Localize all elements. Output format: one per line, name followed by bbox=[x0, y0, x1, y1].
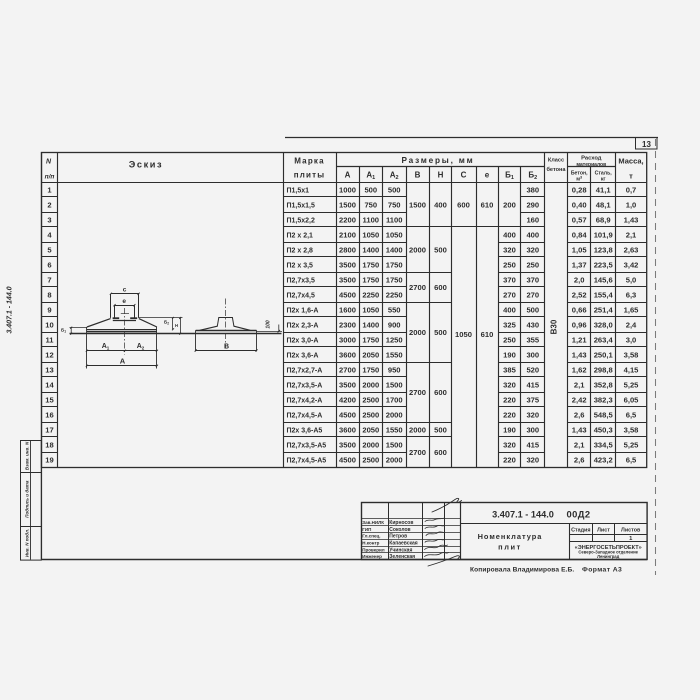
svg-text:Проверил: Проверил bbox=[362, 547, 384, 552]
svg-text:900: 900 bbox=[388, 320, 401, 329]
svg-text:П2,7х3,5-А: П2,7х3,5-А bbox=[287, 382, 323, 389]
svg-text:1750: 1750 bbox=[362, 275, 379, 284]
svg-text:320: 320 bbox=[503, 245, 516, 254]
svg-text:300: 300 bbox=[526, 425, 539, 434]
svg-text:2000: 2000 bbox=[409, 328, 426, 337]
svg-text:385: 385 bbox=[503, 365, 516, 374]
svg-text:48,1: 48,1 bbox=[596, 200, 612, 209]
svg-text:190: 190 bbox=[503, 425, 516, 434]
svg-text:610: 610 bbox=[481, 200, 494, 209]
svg-text:П2х 3,6-А: П2х 3,6-А bbox=[287, 352, 319, 359]
svg-text:320: 320 bbox=[526, 410, 539, 419]
svg-text:Марка: Марка bbox=[294, 157, 325, 166]
svg-text:600: 600 bbox=[434, 388, 447, 397]
svg-text:9: 9 bbox=[47, 305, 51, 314]
svg-text:Размеры, мм: Размеры, мм bbox=[402, 156, 475, 165]
svg-text:250: 250 bbox=[526, 260, 539, 269]
svg-text:плиты: плиты bbox=[294, 171, 326, 180]
svg-text:550: 550 bbox=[388, 305, 401, 314]
svg-text:3,42: 3,42 bbox=[624, 260, 639, 269]
svg-text:160: 160 bbox=[526, 215, 539, 224]
svg-text:380: 380 bbox=[526, 185, 539, 194]
svg-text:600: 600 bbox=[434, 283, 447, 292]
svg-text:2,6: 2,6 bbox=[574, 455, 585, 464]
svg-text:П2,7х3,5-А5: П2,7х3,5-А5 bbox=[287, 442, 327, 449]
svg-text:320: 320 bbox=[503, 440, 516, 449]
svg-text:А: А bbox=[120, 356, 126, 365]
svg-text:1050: 1050 bbox=[386, 230, 403, 239]
svg-text:А: А bbox=[345, 171, 351, 180]
svg-text:1400: 1400 bbox=[362, 245, 379, 254]
svg-text:2000: 2000 bbox=[386, 455, 403, 464]
svg-text:220: 220 bbox=[503, 410, 516, 419]
svg-text:3500: 3500 bbox=[339, 260, 356, 269]
svg-text:415: 415 bbox=[526, 380, 539, 389]
svg-text:3: 3 bbox=[47, 215, 51, 224]
svg-text:375: 375 bbox=[526, 395, 539, 404]
svg-text:Лист: Лист bbox=[597, 528, 610, 534]
svg-text:2,1: 2,1 bbox=[574, 380, 585, 389]
svg-text:1500: 1500 bbox=[386, 380, 403, 389]
svg-text:415: 415 bbox=[526, 440, 539, 449]
svg-text:П2,7х3,5: П2,7х3,5 bbox=[287, 277, 315, 284]
svg-text:1550: 1550 bbox=[386, 425, 403, 434]
svg-text:Инженер: Инженер bbox=[362, 554, 382, 559]
svg-text:Номенклатура: Номенклатура bbox=[478, 532, 543, 541]
svg-text:400: 400 bbox=[503, 305, 516, 314]
svg-text:500: 500 bbox=[434, 425, 447, 434]
svg-text:2700: 2700 bbox=[409, 283, 426, 292]
svg-text:5,25: 5,25 bbox=[624, 440, 640, 449]
svg-text:298,8: 298,8 bbox=[594, 365, 613, 374]
svg-text:Кирносов: Кирносов bbox=[389, 520, 413, 526]
svg-text:220: 220 bbox=[503, 395, 516, 404]
svg-text:2000: 2000 bbox=[362, 440, 379, 449]
svg-text:352,8: 352,8 bbox=[594, 380, 613, 389]
svg-text:123,8: 123,8 bbox=[594, 245, 613, 254]
svg-text:0,28: 0,28 bbox=[572, 185, 587, 194]
svg-text:2300: 2300 bbox=[339, 320, 356, 329]
svg-text:3.407.1 - 144.0: 3.407.1 - 144.0 bbox=[492, 510, 554, 520]
svg-text:6: 6 bbox=[47, 260, 51, 269]
svg-text:1400: 1400 bbox=[362, 320, 379, 329]
svg-text:10: 10 bbox=[45, 320, 53, 329]
svg-text:Н.контр: Н.контр bbox=[362, 541, 379, 546]
svg-text:е: е bbox=[122, 298, 126, 305]
svg-text:2000: 2000 bbox=[386, 410, 403, 419]
svg-text:500: 500 bbox=[434, 245, 447, 254]
svg-text:П2х 1,6-А: П2х 1,6-А bbox=[287, 307, 319, 314]
svg-text:плит: плит bbox=[498, 543, 522, 552]
svg-text:423,2: 423,2 bbox=[594, 455, 613, 464]
svg-text:Капаевская: Капаевская bbox=[389, 541, 417, 547]
svg-text:68,9: 68,9 bbox=[596, 215, 611, 224]
svg-text:Масса,: Масса, bbox=[618, 157, 643, 166]
svg-text:0,96: 0,96 bbox=[572, 320, 587, 329]
svg-text:223,5: 223,5 bbox=[594, 260, 614, 269]
svg-text:4500: 4500 bbox=[339, 410, 356, 419]
svg-text:1750: 1750 bbox=[386, 275, 403, 284]
svg-text:1600: 1600 bbox=[339, 305, 356, 314]
svg-text:190: 190 bbox=[503, 350, 516, 359]
svg-text:2700: 2700 bbox=[409, 388, 426, 397]
svg-text:П2х 2,3-А: П2х 2,3-А bbox=[287, 322, 319, 329]
svg-text:Подпись и дата: Подпись и дата bbox=[24, 480, 29, 518]
svg-text:1400: 1400 bbox=[386, 245, 403, 254]
svg-text:2,6: 2,6 bbox=[574, 410, 585, 419]
svg-text:1100: 1100 bbox=[363, 215, 379, 224]
svg-text:П2,7х2,7-А: П2,7х2,7-А bbox=[287, 367, 323, 374]
svg-text:4,15: 4,15 bbox=[624, 365, 640, 374]
svg-text:263,4: 263,4 bbox=[594, 335, 614, 344]
svg-text:2,1: 2,1 bbox=[626, 230, 637, 239]
svg-text:2100: 2100 bbox=[339, 230, 356, 239]
svg-text:0,40: 0,40 bbox=[572, 200, 587, 209]
svg-text:1750: 1750 bbox=[386, 260, 403, 269]
svg-text:450,3: 450,3 bbox=[594, 425, 613, 434]
svg-text:3500: 3500 bbox=[339, 440, 356, 449]
svg-text:2,63: 2,63 bbox=[624, 245, 639, 254]
svg-text:13: 13 bbox=[642, 140, 651, 149]
svg-text:355: 355 bbox=[526, 335, 539, 344]
svg-text:41,1: 41,1 bbox=[596, 185, 612, 194]
svg-text:Гл.спец.: Гл.спец. bbox=[362, 534, 380, 539]
svg-text:6,05: 6,05 bbox=[624, 395, 640, 404]
svg-text:2050: 2050 bbox=[362, 350, 379, 359]
svg-text:101,9: 101,9 bbox=[594, 230, 613, 239]
svg-text:7: 7 bbox=[47, 275, 51, 284]
svg-text:кг: кг bbox=[601, 177, 607, 183]
svg-text:Расход: Расход bbox=[581, 156, 602, 162]
svg-text:11: 11 bbox=[45, 335, 54, 344]
svg-text:2500: 2500 bbox=[362, 395, 379, 404]
svg-text:145,6: 145,6 bbox=[594, 275, 613, 284]
svg-text:1,43: 1,43 bbox=[572, 425, 587, 434]
svg-text:1100: 1100 bbox=[386, 215, 402, 224]
svg-text:548,5: 548,5 bbox=[594, 410, 614, 419]
svg-text:400: 400 bbox=[434, 200, 447, 209]
svg-text:750: 750 bbox=[364, 200, 377, 209]
svg-text:1050: 1050 bbox=[362, 230, 379, 239]
svg-text:3500: 3500 bbox=[339, 380, 356, 389]
svg-text:17: 17 bbox=[45, 425, 53, 434]
svg-text:100: 100 bbox=[266, 320, 272, 329]
svg-text:0,7: 0,7 bbox=[626, 185, 637, 194]
svg-text:2,42: 2,42 bbox=[572, 395, 587, 404]
svg-text:2,0: 2,0 bbox=[574, 275, 585, 284]
svg-text:ГИП: ГИП bbox=[362, 527, 371, 532]
svg-text:П2,7х4,5-А: П2,7х4,5-А bbox=[287, 412, 323, 419]
svg-text:Класс: Класс bbox=[548, 158, 564, 164]
svg-text:3600: 3600 bbox=[339, 425, 356, 434]
svg-text:430: 430 bbox=[526, 320, 539, 329]
svg-text:В: В bbox=[415, 171, 421, 180]
svg-text:П2х 3,0-А: П2х 3,0-А bbox=[287, 337, 319, 344]
svg-text:600: 600 bbox=[434, 448, 447, 457]
svg-text:2,4: 2,4 bbox=[626, 320, 637, 329]
svg-text:13: 13 bbox=[45, 365, 53, 374]
svg-text:2000: 2000 bbox=[409, 425, 426, 434]
svg-text:2500: 2500 bbox=[362, 455, 379, 464]
svg-text:2250: 2250 bbox=[386, 290, 403, 299]
svg-text:1,65: 1,65 bbox=[624, 305, 640, 314]
svg-text:3,0: 3,0 bbox=[626, 335, 637, 344]
svg-text:Листов: Листов bbox=[621, 528, 641, 534]
svg-text:1,43: 1,43 bbox=[572, 350, 587, 359]
svg-text:Взам. инв. N: Взам. инв. N bbox=[24, 441, 29, 470]
svg-text:т: т bbox=[629, 172, 633, 181]
svg-text:950: 950 bbox=[388, 365, 401, 374]
svg-text:3,58: 3,58 bbox=[624, 425, 639, 434]
svg-text:3000: 3000 bbox=[339, 335, 356, 344]
svg-text:4200: 4200 bbox=[339, 395, 356, 404]
svg-text:220: 220 bbox=[503, 455, 516, 464]
svg-text:П2 х 2,8: П2 х 2,8 bbox=[287, 247, 314, 254]
svg-text:Эскиз: Эскиз bbox=[129, 160, 163, 170]
svg-text:251,4: 251,4 bbox=[594, 305, 614, 314]
svg-text:520: 520 bbox=[526, 365, 539, 374]
svg-text:п/п: п/п bbox=[45, 174, 55, 181]
svg-text:500: 500 bbox=[434, 328, 447, 337]
svg-text:2250: 2250 bbox=[362, 290, 379, 299]
svg-text:14: 14 bbox=[45, 380, 54, 389]
svg-text:250: 250 bbox=[503, 335, 516, 344]
svg-text:Н: Н bbox=[438, 171, 444, 180]
svg-text:П2 х 3,5: П2 х 3,5 bbox=[287, 262, 314, 269]
svg-text:1000: 1000 bbox=[339, 185, 356, 194]
svg-text:2,52: 2,52 bbox=[572, 290, 587, 299]
svg-text:2: 2 bbox=[47, 200, 51, 209]
svg-text:1,43: 1,43 bbox=[624, 215, 639, 224]
svg-text:1750: 1750 bbox=[362, 365, 379, 374]
svg-text:5,0: 5,0 bbox=[626, 275, 637, 284]
svg-text:2,1: 2,1 bbox=[574, 440, 585, 449]
svg-text:1,21: 1,21 bbox=[572, 335, 588, 344]
svg-text:П2,7х4,2-А: П2,7х4,2-А bbox=[287, 397, 323, 404]
svg-text:1050: 1050 bbox=[362, 305, 379, 314]
svg-text:750: 750 bbox=[388, 200, 401, 209]
svg-text:2700: 2700 bbox=[339, 365, 356, 374]
svg-text:бетона: бетона bbox=[546, 166, 566, 173]
svg-text:500: 500 bbox=[364, 185, 377, 194]
svg-text:В30: В30 bbox=[550, 319, 559, 334]
svg-text:370: 370 bbox=[526, 275, 539, 284]
svg-text:250,1: 250,1 bbox=[594, 350, 614, 359]
svg-text:4500: 4500 bbox=[339, 290, 356, 299]
svg-text:6,5: 6,5 bbox=[626, 455, 637, 464]
svg-text:290: 290 bbox=[526, 200, 539, 209]
svg-text:328,0: 328,0 bbox=[594, 320, 613, 329]
svg-text:Ленинград: Ленинград bbox=[597, 554, 620, 559]
svg-text:500: 500 bbox=[526, 305, 539, 314]
svg-text:3,58: 3,58 bbox=[624, 350, 639, 359]
svg-text:250: 250 bbox=[503, 260, 516, 269]
svg-text:1500: 1500 bbox=[339, 200, 356, 209]
svg-text:Н: Н bbox=[175, 323, 178, 328]
svg-text:П2х 3,6-А5: П2х 3,6-А5 bbox=[287, 427, 323, 434]
svg-text:1750: 1750 bbox=[362, 260, 379, 269]
svg-text:382,3: 382,3 bbox=[594, 395, 613, 404]
svg-text:1250: 1250 bbox=[386, 335, 403, 344]
svg-text:3500: 3500 bbox=[339, 275, 356, 284]
svg-text:2000: 2000 bbox=[409, 245, 426, 254]
svg-text:1500: 1500 bbox=[386, 440, 403, 449]
svg-text:400: 400 bbox=[503, 230, 516, 239]
svg-text:1050: 1050 bbox=[455, 330, 472, 339]
svg-text:370: 370 bbox=[503, 275, 516, 284]
svg-text:400: 400 bbox=[526, 230, 539, 239]
svg-text:Формат А3: Формат А3 bbox=[582, 567, 622, 574]
svg-text:8: 8 bbox=[47, 290, 51, 299]
svg-text:С: С bbox=[461, 171, 467, 180]
svg-text:3.407.1 - 144.0: 3.407.1 - 144.0 bbox=[7, 286, 14, 333]
svg-text:2700: 2700 bbox=[409, 448, 426, 457]
svg-text:2800: 2800 bbox=[339, 245, 356, 254]
svg-text:П1,5х2,2: П1,5х2,2 bbox=[287, 217, 315, 224]
svg-text:270: 270 bbox=[503, 290, 516, 299]
svg-text:12: 12 bbox=[45, 350, 53, 359]
svg-text:1750: 1750 bbox=[362, 335, 379, 344]
svg-text:материалов: материалов bbox=[576, 162, 606, 168]
svg-text:2050: 2050 bbox=[362, 425, 379, 434]
svg-text:334,5: 334,5 bbox=[594, 440, 614, 449]
svg-text:19: 19 bbox=[45, 455, 53, 464]
svg-text:2500: 2500 bbox=[362, 410, 379, 419]
svg-text:600: 600 bbox=[457, 200, 470, 209]
svg-text:320: 320 bbox=[526, 245, 539, 254]
svg-text:П2,7х4,5: П2,7х4,5 bbox=[287, 292, 315, 299]
svg-text:2000: 2000 bbox=[362, 380, 379, 389]
svg-text:Учинская: Учинская bbox=[389, 547, 412, 553]
svg-text:1,05: 1,05 bbox=[572, 245, 588, 254]
svg-text:00Д2: 00Д2 bbox=[567, 509, 591, 520]
svg-text:3600: 3600 bbox=[339, 350, 356, 359]
svg-text:6,5: 6,5 bbox=[626, 410, 637, 419]
svg-text:Зав.НИЛК: Зав.НИЛК bbox=[362, 520, 384, 525]
svg-text:П1,5х1: П1,5х1 bbox=[287, 187, 310, 194]
svg-text:1,62: 1,62 bbox=[572, 365, 587, 374]
svg-text:2200: 2200 bbox=[339, 215, 356, 224]
svg-text:16: 16 bbox=[45, 410, 53, 419]
svg-text:155,4: 155,4 bbox=[594, 290, 614, 299]
svg-text:610: 610 bbox=[481, 330, 494, 339]
svg-text:Инв. N подл.: Инв. N подл. bbox=[24, 529, 29, 558]
svg-text:320: 320 bbox=[503, 380, 516, 389]
svg-text:0,57: 0,57 bbox=[572, 215, 587, 224]
svg-text:4500: 4500 bbox=[339, 455, 356, 464]
svg-text:Петров: Петров bbox=[389, 534, 407, 540]
svg-text:Зеленская: Зеленская bbox=[389, 554, 415, 560]
svg-text:Копировала Владимирова Е.Б.: Копировала Владимирова Е.Б. bbox=[470, 567, 574, 574]
svg-text:1500: 1500 bbox=[409, 200, 426, 209]
svg-text:1,0: 1,0 bbox=[626, 200, 637, 209]
svg-text:е: е bbox=[485, 171, 490, 180]
svg-text:0,66: 0,66 bbox=[572, 305, 587, 314]
svg-text:Стадия: Стадия bbox=[571, 528, 590, 534]
svg-text:П1,5х1,5: П1,5х1,5 bbox=[287, 202, 315, 209]
svg-text:15: 15 bbox=[45, 395, 54, 404]
svg-text:П2,7х4,5-А5: П2,7х4,5-А5 bbox=[287, 457, 327, 464]
svg-text:1700: 1700 bbox=[386, 395, 403, 404]
svg-text:0,84: 0,84 bbox=[572, 230, 588, 239]
svg-text:1,37: 1,37 bbox=[572, 260, 587, 269]
svg-text:Соколов: Соколов bbox=[389, 527, 410, 533]
svg-text:325: 325 bbox=[503, 320, 516, 329]
svg-text:200: 200 bbox=[503, 200, 516, 209]
svg-text:П2 х 2,1: П2 х 2,1 bbox=[287, 232, 314, 239]
svg-text:В: В bbox=[224, 344, 229, 351]
svg-text:300: 300 bbox=[526, 350, 539, 359]
svg-text:270: 270 bbox=[526, 290, 539, 299]
svg-text:c: c bbox=[123, 286, 127, 293]
svg-text:1550: 1550 bbox=[386, 350, 403, 359]
svg-text:320: 320 bbox=[526, 455, 539, 464]
svg-text:6,3: 6,3 bbox=[626, 290, 637, 299]
svg-text:18: 18 bbox=[45, 440, 53, 449]
svg-text:500: 500 bbox=[388, 185, 401, 194]
svg-text:5,25: 5,25 bbox=[624, 380, 640, 389]
